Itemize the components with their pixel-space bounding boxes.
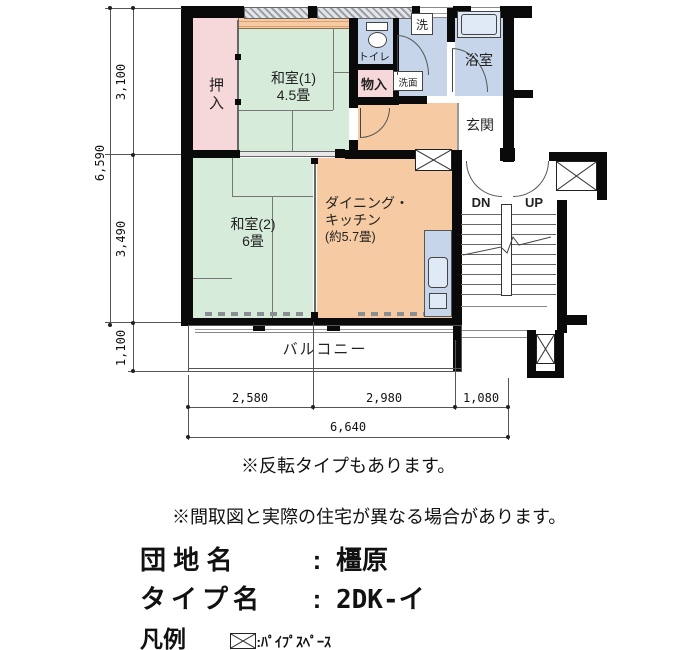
pillar — [235, 54, 241, 60]
kitchen-stove-icon — [429, 293, 447, 309]
vanity-label: 洗面 — [393, 75, 423, 92]
dim-ext-line — [105, 154, 181, 155]
wall — [397, 96, 427, 104]
dk-partition-track — [314, 158, 316, 318]
window-sill — [205, 312, 307, 316]
wall — [527, 371, 564, 378]
wall — [503, 6, 514, 162]
dim-left-bottom: 1,100 — [114, 318, 128, 378]
wall — [447, 8, 455, 42]
dim-ext-line — [313, 322, 314, 410]
estate-name-value: 橿原 — [336, 545, 388, 575]
dim-left-top: 3,100 — [114, 52, 128, 112]
type-name-row: タイプ名:2DK-イ — [140, 579, 425, 616]
tatami-line — [292, 110, 293, 151]
floor-plan-page: 押入 和室(1) 4.5畳 トイレ 洗 洗面 物入 浴室 玄関 和室(2) 6畳… — [0, 0, 700, 650]
stairs-up-label: UP — [519, 194, 549, 211]
type-name-value: 2DK-イ — [336, 585, 425, 615]
genkan-label: 玄関 — [457, 117, 503, 134]
dk-label: ダイニング・ キッチン (約5.7畳) — [325, 195, 425, 246]
wall — [308, 6, 317, 18]
washitsu1-name: 和室(1) — [238, 70, 349, 87]
door-arc-entry-left — [466, 161, 502, 197]
toilet-bowl-icon — [368, 32, 387, 48]
washitsu2-label: 和室(2) 6畳 — [193, 216, 313, 250]
kitchen-sink-icon — [428, 257, 448, 288]
estate-name-row: 団 地 名:橿原 — [140, 540, 388, 577]
estate-name-label: 団 地 名 — [140, 540, 298, 577]
wall — [557, 200, 567, 333]
dim-tick — [186, 435, 190, 439]
wall — [181, 150, 240, 158]
washer-label: 洗 — [411, 17, 433, 34]
fusuma-track — [311, 151, 335, 157]
pillar — [500, 148, 515, 161]
pipe-space-icon — [415, 149, 452, 171]
dim-bottom-seg3: 1,080 — [451, 391, 511, 405]
dim-tick — [186, 405, 190, 409]
window — [244, 7, 310, 19]
dim-tick — [108, 323, 112, 327]
dim-tick — [506, 405, 510, 409]
dim-tick — [453, 405, 457, 409]
balcony-label: バルコニー — [188, 341, 462, 358]
dim-left-total: 6,590 — [93, 133, 107, 193]
washitsu2-name: 和室(2) — [193, 216, 313, 233]
tatami-line — [272, 196, 273, 318]
pipe-space-legend-icon — [230, 633, 256, 649]
stair-break-line-icon — [463, 233, 551, 259]
storage-label: 物入 — [353, 76, 395, 93]
colon: : — [298, 584, 336, 615]
toilet-label: トイレ — [353, 49, 395, 66]
wall — [562, 315, 587, 325]
stair-landing-line — [461, 306, 547, 307]
dim-tick — [311, 405, 315, 409]
dim-bottom-total: 6,640 — [318, 420, 378, 434]
tatami-line — [232, 158, 233, 196]
dim-tick — [108, 6, 112, 10]
stairs-down-label: DN — [466, 194, 496, 211]
washitsu1-size: 4.5畳 — [238, 87, 349, 104]
dk-line3: (約5.7畳) — [325, 229, 425, 246]
note-disclaimer: ※間取図と実際の住宅が異なる場合があります。 — [172, 503, 566, 529]
colon: : — [298, 545, 336, 576]
balcony-inner-line — [189, 368, 461, 369]
dim-tick — [131, 153, 135, 157]
legend-title: 凡例 — [140, 626, 186, 650]
pipe-space-icon — [536, 334, 555, 364]
wall — [349, 140, 358, 158]
washitsu1-label: 和室(1) 4.5畳 — [238, 70, 349, 104]
dim-ext-line — [508, 378, 509, 440]
dim-ext-line — [128, 371, 190, 372]
pillar — [311, 158, 318, 164]
wall — [181, 6, 193, 325]
oshiire-label: 押入 — [207, 60, 224, 130]
dim-bottom-seg1: 2,580 — [220, 391, 280, 405]
wall — [597, 152, 607, 200]
legend-row: 凡例 :ﾊﾟｲﾌﾟｽﾍﾟｰｽ — [140, 620, 331, 650]
dk-line1: ダイニング・ — [325, 195, 425, 212]
tatami-line — [193, 278, 232, 279]
window — [317, 7, 414, 19]
rail-line — [462, 337, 527, 338]
washitsu2-size: 6畳 — [193, 233, 313, 250]
dim-tick — [506, 435, 510, 439]
dim-tick — [131, 6, 135, 10]
type-name-label: タイプ名 — [140, 579, 298, 616]
note-reverse-type: ※反転タイプもあります。 — [241, 452, 455, 478]
dk-line2: キッチン — [325, 212, 425, 229]
dim-line — [110, 8, 111, 325]
tatami-line — [238, 110, 333, 111]
bath-label: 浴室 — [455, 52, 503, 69]
bathtub-inner — [461, 14, 497, 35]
dim-line — [133, 8, 134, 372]
wall — [503, 90, 533, 98]
dim-tick — [131, 321, 135, 325]
dim-line — [188, 407, 508, 408]
dim-bottom-seg2: 2,980 — [354, 391, 414, 405]
dim-tick — [131, 369, 135, 373]
dim-ext-line — [105, 8, 182, 9]
legend-pipe-space-label: :ﾊﾟｲﾌﾟｽﾍﾟｰｽ — [256, 634, 331, 650]
door-arc-entry-right — [513, 161, 549, 197]
pipe-space-icon — [556, 161, 597, 191]
dim-line — [188, 437, 508, 438]
dim-left-middle: 3,490 — [114, 209, 128, 269]
toilet-tank-icon — [366, 22, 388, 31]
rail-line — [462, 330, 527, 331]
fusuma-track — [240, 151, 311, 157]
pillar — [335, 149, 345, 158]
